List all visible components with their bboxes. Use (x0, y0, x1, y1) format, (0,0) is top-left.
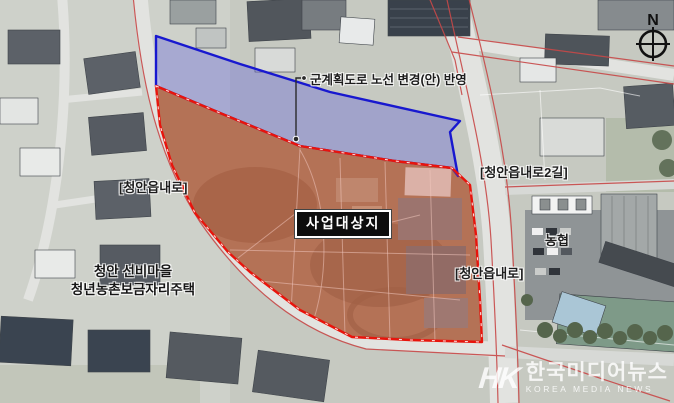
road-label-cheongan-eupnae-2gil: [청안읍내로2길] (480, 162, 568, 181)
nonghyup-label: 농협 (545, 230, 569, 249)
road-label-cheongan-eupnae-right: [청안읍내로] (455, 263, 523, 282)
road-label-cheongan-eupnae-left: [청안읍내로] (119, 177, 187, 196)
village-label-line1: 청안 선비마을 (46, 263, 220, 281)
compass-n-label: N (647, 12, 659, 29)
press-name-korean: 한국미디어뉴스 (526, 362, 668, 384)
village-label: 청안 선비마을 청년농촌보금자리주택 (46, 263, 220, 298)
press-watermark: HK 한국미디어뉴스 KOREA MEDIA NEWS (479, 362, 668, 395)
aerial-map-figure: N 군계획도로 노선 변경(안) 반영 [청안읍내로] [청안읍내로2길] [청… (0, 0, 674, 403)
press-logo: HK (478, 364, 520, 394)
project-site-label: 사업대상지 (295, 210, 391, 238)
route-change-note-label: 군계획도로 노선 변경(안) 반영 (310, 69, 467, 88)
village-label-line2: 청년농촌보금자리주택 (46, 281, 220, 299)
press-name-english: KOREA MEDIA NEWS (526, 384, 668, 395)
aerial-map-canvas: N (0, 0, 674, 403)
